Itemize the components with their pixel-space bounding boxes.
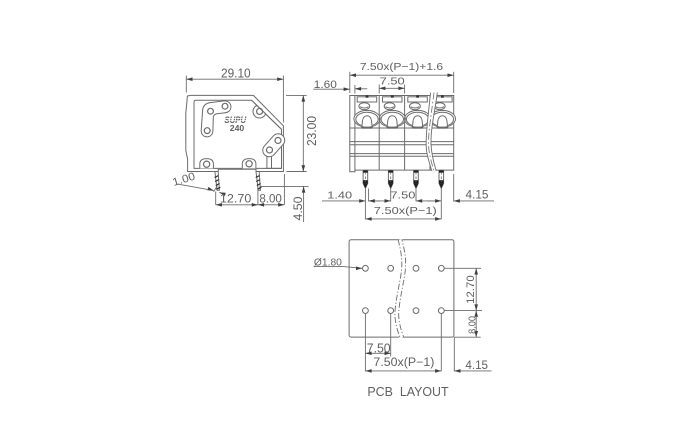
svg-text:240: 240 bbox=[230, 123, 245, 133]
svg-text:Ø1.80: Ø1.80 bbox=[314, 257, 342, 268]
svg-text:1.40: 1.40 bbox=[327, 191, 352, 202]
svg-text:7.50x(P−1): 7.50x(P−1) bbox=[374, 205, 437, 217]
svg-text:12.70: 12.70 bbox=[220, 193, 252, 205]
svg-text:4.15: 4.15 bbox=[466, 189, 489, 201]
svg-text:1.00: 1.00 bbox=[171, 171, 197, 189]
svg-text:23.00: 23.00 bbox=[305, 116, 319, 146]
svg-text:4.15: 4.15 bbox=[465, 360, 488, 372]
svg-text:8.00: 8.00 bbox=[467, 316, 478, 334]
svg-text:7.50: 7.50 bbox=[390, 189, 415, 201]
svg-text:7.50: 7.50 bbox=[380, 76, 405, 88]
svg-text:4.50: 4.50 bbox=[291, 196, 305, 220]
svg-text:PCB LAYOUT: PCB LAYOUT bbox=[367, 384, 448, 399]
svg-text:29.10: 29.10 bbox=[221, 67, 251, 81]
svg-text:7.50x(P−1)+1.6: 7.50x(P−1)+1.6 bbox=[360, 61, 443, 73]
svg-text:7.50: 7.50 bbox=[367, 341, 391, 355]
svg-text:12.70: 12.70 bbox=[465, 275, 477, 304]
svg-text:8.00: 8.00 bbox=[259, 193, 282, 205]
svg-text:7.50x(P−1): 7.50x(P−1) bbox=[373, 357, 434, 369]
svg-text:1.60: 1.60 bbox=[314, 79, 337, 91]
